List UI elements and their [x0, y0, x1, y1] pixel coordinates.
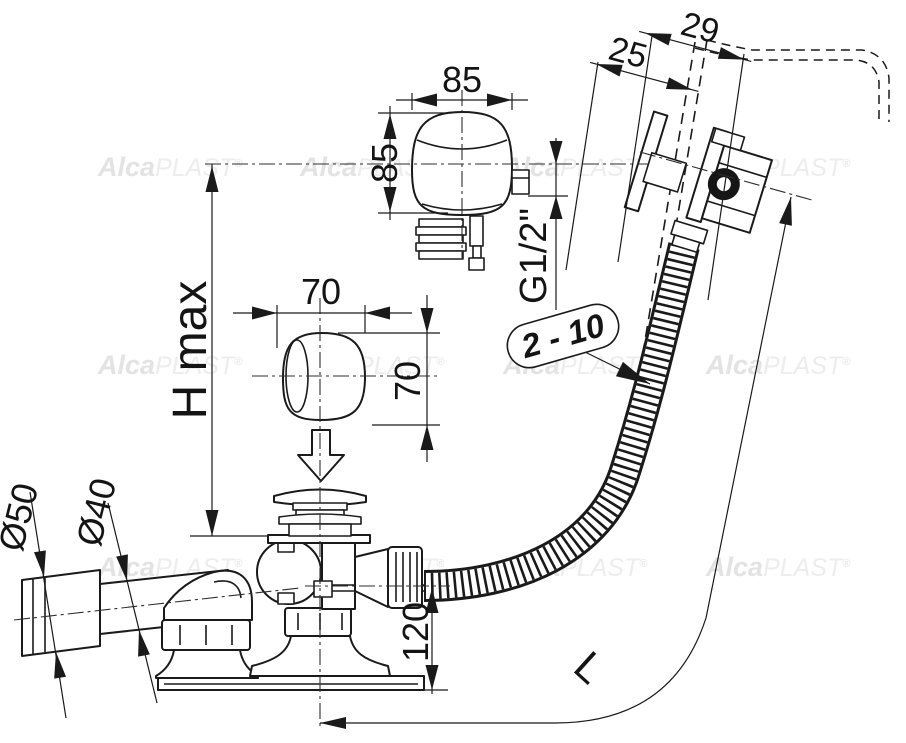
hose-rib — [416, 227, 466, 235]
tee-neck — [355, 549, 388, 607]
dim-label-overflow-width: 85 — [442, 59, 482, 100]
bath-rim-outer — [707, 40, 889, 122]
cable-stem — [470, 216, 483, 246]
dim-height-max: H max — [164, 164, 268, 536]
knob-70 — [283, 333, 365, 481]
thread-tab-g12 — [512, 170, 529, 194]
install-direction-arrow — [298, 430, 344, 481]
hose-rib — [419, 251, 463, 259]
dim-label-waste-height: 120 — [395, 602, 436, 662]
watermark: AlcaPLAST® — [705, 552, 851, 582]
dim-label-hose-length: L — [565, 642, 614, 693]
dim-label-knob-width: 70 — [301, 271, 341, 312]
watermark: AlcaPLAST® — [705, 350, 851, 380]
dim-rim-total: 29 — [638, 0, 761, 67]
hose-rib — [419, 219, 463, 227]
dim-label-thread: G1/2" — [513, 208, 555, 304]
overflow-fitting — [618, 110, 776, 266]
dim-label-rim-total: 29 — [677, 5, 723, 51]
knob-70-body — [283, 333, 365, 420]
cable-stem-narrow — [473, 246, 481, 258]
cable-anchor-block — [314, 581, 332, 597]
dim-label-knob-height: 70 — [387, 361, 428, 401]
dim-label-outlet-dia: Ø50 — [0, 479, 46, 555]
cable-stem-end — [469, 258, 484, 270]
bath-rim-inner — [695, 48, 879, 122]
overflow-control-unit — [412, 112, 529, 270]
hose-rib — [419, 235, 463, 243]
technical-drawing-page: AlcaPLAST® AlcaPLAST® AlcaPLAST® AlcaPLA… — [0, 0, 906, 743]
dim-label-pipe-dia: Ø40 — [68, 474, 124, 550]
ball-tab-bottom — [278, 593, 294, 604]
hose-rib — [416, 243, 466, 251]
elbow-flare — [156, 650, 258, 678]
dim-hose-length: L — [320, 196, 797, 729]
overflow-funnel-box — [643, 153, 686, 192]
valve-body-plate — [322, 537, 355, 609]
bath-waste-overflow-drawing: AlcaPLAST® AlcaPLAST® AlcaPLAST® AlcaPLA… — [0, 0, 906, 743]
dim-label-overflow-height: 85 — [364, 143, 405, 183]
waste-lower-nut — [285, 608, 351, 636]
dim-label-height-max: H max — [164, 281, 217, 420]
watermark: AlcaPLAST® — [97, 152, 243, 182]
